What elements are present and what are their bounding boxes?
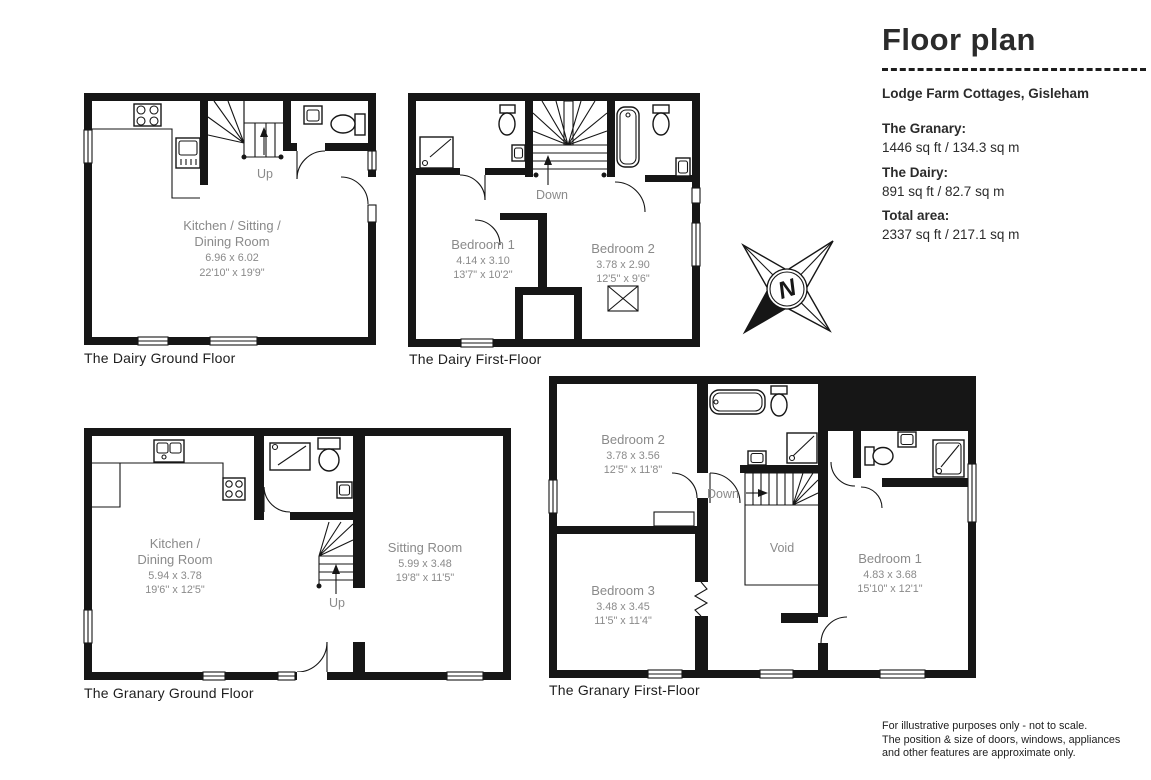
svg-text:Bedroom 2: Bedroom 2 — [601, 432, 665, 447]
cupboard — [654, 512, 694, 526]
area-total: Total area: 2337 sq ft / 217.1 sq m — [882, 208, 1019, 242]
dairy-ground-caption: The Dairy Ground Floor — [84, 350, 235, 366]
svg-text:15'10" x 12'1": 15'10" x 12'1" — [857, 583, 922, 595]
area-total-value: 2337 sq ft / 217.1 sq m — [882, 227, 1019, 242]
svg-text:5.94 x 3.78: 5.94 x 3.78 — [148, 570, 201, 582]
svg-text:Bedroom 1: Bedroom 1 — [858, 551, 922, 566]
svg-text:12'5'' x 9'6": 12'5'' x 9'6" — [596, 273, 650, 285]
granary-first-floor-plan: Down Void Bedroom 2 3.78 x 3.56 12'5" x … — [549, 376, 976, 678]
kitchen-counter — [92, 463, 223, 507]
stove-icon — [134, 104, 161, 126]
kitchen-label: Kitchen / Dining Room 5.94 x 3.78 19'6''… — [137, 536, 212, 596]
sitting-room-label: Sitting Room 5.99 x 3.48 19'8" x 11'5" — [388, 540, 462, 584]
kitchen-sink-icon — [176, 138, 200, 168]
property-address: Lodge Farm Cottages, Gisleham — [882, 86, 1089, 101]
svg-text:11'5" x 11'4": 11'5" x 11'4" — [594, 615, 652, 627]
svg-text:3.78 x 2.90: 3.78 x 2.90 — [596, 259, 649, 271]
doors — [460, 175, 645, 245]
toilet-icon — [318, 438, 340, 471]
room-label: Kitchen / Sitting / Dining Room 6.96 x 6… — [183, 218, 281, 279]
page-title: Floor plan — [882, 22, 1036, 58]
dairy-first-caption: The Dairy First-Floor — [409, 351, 542, 367]
stairs — [317, 522, 354, 594]
wc-door — [297, 151, 325, 179]
stairs-label: Down — [707, 487, 739, 501]
granary-ground-floor-plan: Up Kitchen / Dining Room 5.94 x 3.78 19'… — [84, 428, 511, 680]
svg-text:19'8" x 11'5": 19'8" x 11'5" — [396, 572, 455, 584]
stairs-label: Up — [329, 596, 345, 610]
toilet-icon-2 — [865, 447, 893, 465]
svg-text:3.48 x 3.45: 3.48 x 3.45 — [596, 601, 649, 613]
skylight-box — [608, 286, 638, 311]
stairs — [745, 473, 818, 505]
basin-icon — [512, 145, 525, 161]
basin-icon — [748, 451, 766, 465]
area-granary-value: 1446 sq ft / 134.3 sq m — [882, 140, 1019, 155]
walls — [549, 376, 976, 678]
svg-text:Sitting Room: Sitting Room — [388, 540, 462, 555]
svg-text:Kitchen / Sitting /: Kitchen / Sitting / — [183, 218, 281, 233]
disclaimer-line: and other features are approximate only. — [882, 747, 1120, 761]
area-dairy-value: 891 sq ft / 82.7 sq m — [882, 184, 1004, 199]
bedroom1-label: Bedroom 1 4.14 x 3.10 13'7" x 10'2'' — [451, 237, 515, 281]
svg-text:4.14 x 3.10: 4.14 x 3.10 — [456, 255, 509, 267]
area-granary-label: The Granary: — [882, 121, 1019, 136]
disclaimer-line: For illustrative purposes only - not to … — [882, 720, 1120, 734]
svg-text:13'7" x 10'2'': 13'7" x 10'2'' — [453, 269, 513, 281]
stairs-label: Up — [257, 167, 273, 181]
area-dairy: The Dairy: 891 sq ft / 82.7 sq m — [882, 165, 1004, 199]
stairs — [533, 101, 607, 185]
svg-text:Dining Room: Dining Room — [137, 552, 212, 567]
compass-icon: N — [737, 237, 837, 337]
granary-first-caption: The Granary First-Floor — [549, 682, 700, 698]
shower-icon-2 — [933, 440, 964, 477]
shower-icon — [270, 443, 310, 470]
svg-text:4.83 x 3.68: 4.83 x 3.68 — [863, 569, 916, 581]
area-dairy-label: The Dairy: — [882, 165, 1004, 180]
bedroom1-label: Bedroom 1 4.83 x 3.68 15'10" x 12'1" — [857, 551, 922, 595]
svg-text:19'6'' x 12'5": 19'6'' x 12'5" — [145, 584, 205, 596]
floor-plan-page: Up Kitchen / Sitting / Dining Room 6.96 … — [0, 0, 1151, 780]
stairs-label: Down — [536, 188, 568, 202]
shower-icon — [787, 433, 817, 463]
bath-icon — [710, 390, 765, 414]
shower-icon — [420, 137, 453, 168]
dairy-first-floor-plan: Down Bedroom 1 4.14 x 3.10 13'7" x 10'2'… — [408, 93, 700, 347]
area-total-label: Total area: — [882, 208, 1019, 223]
toilet-icon-2 — [653, 105, 669, 135]
svg-text:Kitchen /: Kitchen / — [150, 536, 201, 551]
area-granary: The Granary: 1446 sq ft / 134.3 sq m — [882, 121, 1019, 155]
svg-text:Bedroom 1: Bedroom 1 — [451, 237, 515, 252]
dairy-ground-floor-plan: Up Kitchen / Sitting / Dining Room 6.96 … — [84, 93, 376, 345]
toilet-icon — [331, 114, 365, 135]
basin-icon — [337, 482, 352, 498]
windows — [84, 610, 483, 680]
svg-text:Bedroom 2: Bedroom 2 — [591, 241, 655, 256]
granary-ground-caption: The Granary Ground Floor — [84, 685, 254, 701]
basin-icon-2 — [898, 432, 916, 447]
svg-text:6.96 x 6.02: 6.96 x 6.02 — [205, 252, 258, 264]
svg-text:5.99 x 3.48: 5.99 x 3.48 — [398, 558, 451, 570]
bedroom2-label: Bedroom 2 3.78 x 2.90 12'5'' x 9'6" — [591, 241, 655, 285]
bath-icon — [617, 107, 639, 167]
svg-text:Dining Room: Dining Room — [194, 234, 269, 249]
bedroom3-label: Bedroom 3 3.48 x 3.45 11'5" x 11'4" — [591, 583, 655, 627]
stairs — [208, 101, 284, 160]
basin-icon-2 — [676, 158, 690, 176]
wc-basin-icon — [304, 106, 322, 124]
bedroom2-label: Bedroom 2 3.78 x 3.56 12'5" x 11'8" — [601, 432, 665, 476]
toilet-icon — [771, 386, 787, 416]
kitchen-sink-icon — [154, 440, 184, 462]
title-divider — [882, 68, 1146, 71]
svg-text:12'5" x 11'8": 12'5" x 11'8" — [604, 464, 663, 476]
void-area: Void — [745, 505, 818, 585]
svg-text:Bedroom 3: Bedroom 3 — [591, 583, 655, 598]
stove-icon — [223, 478, 245, 500]
svg-text:3.78 x 3.56: 3.78 x 3.56 — [606, 450, 659, 462]
svg-text:22'10" x 19'9": 22'10" x 19'9" — [199, 267, 264, 279]
toilet-icon — [499, 105, 515, 135]
disclaimer-line: The position & size of doors, windows, a… — [882, 734, 1120, 748]
void-label: Void — [770, 541, 794, 555]
entry-door — [341, 177, 368, 204]
disclaimer: For illustrative purposes only - not to … — [882, 720, 1120, 761]
